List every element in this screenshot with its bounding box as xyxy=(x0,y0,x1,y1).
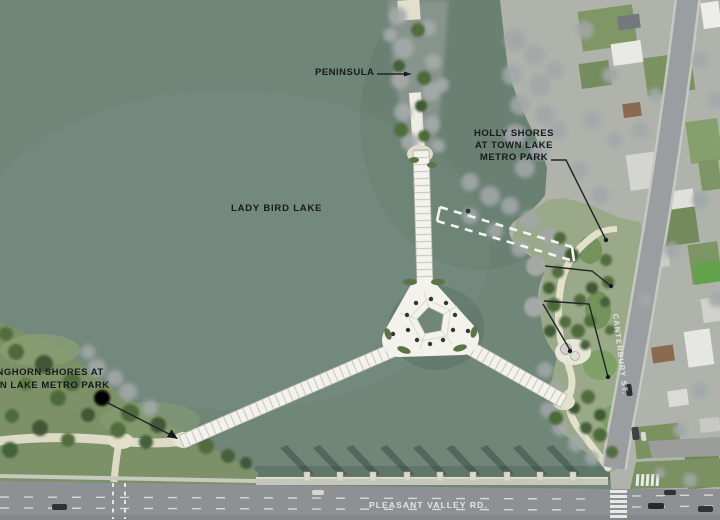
peninsula-label: PENINSULA xyxy=(315,67,374,80)
lady-bird-lake-label: LADY BIRD LAKE xyxy=(231,203,322,216)
leader-dot xyxy=(568,349,572,353)
car xyxy=(648,503,664,509)
leader-dot xyxy=(604,238,608,242)
holly-shores-label: HOLLY SHORES AT TOWN LAKE METRO PARK xyxy=(462,128,566,165)
car xyxy=(52,504,67,510)
car xyxy=(312,490,324,495)
longhorn-shores-label: LONGHORN SHORES AT TOWN LAKE METRO PARK xyxy=(0,366,112,392)
leader-dot xyxy=(609,284,613,288)
car xyxy=(698,506,713,512)
callout-circle xyxy=(526,256,546,276)
pleasant-valley-rd-label: PLEASANT VALLEY RD. xyxy=(369,499,488,512)
callout-circle xyxy=(524,297,544,317)
leader-dot xyxy=(606,375,610,379)
car xyxy=(664,490,676,495)
site-plan-map: PENINSULA HOLLY SHORES AT TOWN LAKE METR… xyxy=(0,0,720,520)
shore-trail xyxy=(0,438,184,443)
